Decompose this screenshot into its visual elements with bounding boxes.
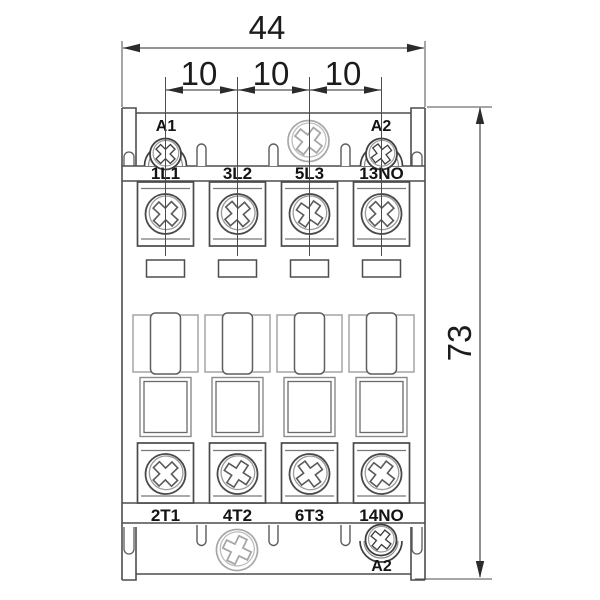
dim-pitch-value-3: 10 [325, 55, 362, 92]
contactor-diagram-svg: A1 A2 1L1 3L2 5L3 13NO 2T1 4T2 6T3 14NO … [0, 0, 600, 600]
label-6t3: 6T3 [295, 506, 324, 525]
label-a2-bottom: A2 [371, 558, 392, 575]
contactor-technical-drawing: A1 A2 1L1 3L2 5L3 13NO 2T1 4T2 6T3 14NO … [0, 0, 600, 600]
label-windows [147, 260, 401, 277]
dim-width-value: 44 [249, 9, 286, 46]
top-fixing-screw [288, 121, 329, 162]
label-2t1: 2T1 [151, 506, 180, 525]
dim-pitch-value-2: 10 [253, 55, 290, 92]
dimension-overall-height: 73 [415, 107, 492, 579]
screw-2t1 [144, 453, 186, 495]
bottom-fixing-screw [213, 526, 262, 575]
middle-row-upper [133, 313, 414, 374]
dim-pitch-value-1: 10 [181, 55, 218, 92]
label-4t2: 4T2 [223, 506, 252, 525]
label-a1: A1 [156, 118, 177, 135]
coil-terminal-a2-bottom [360, 523, 402, 562]
middle-row-lower [140, 378, 407, 437]
label-14no: 14NO [359, 506, 403, 525]
dim-height-value: 73 [441, 325, 478, 362]
